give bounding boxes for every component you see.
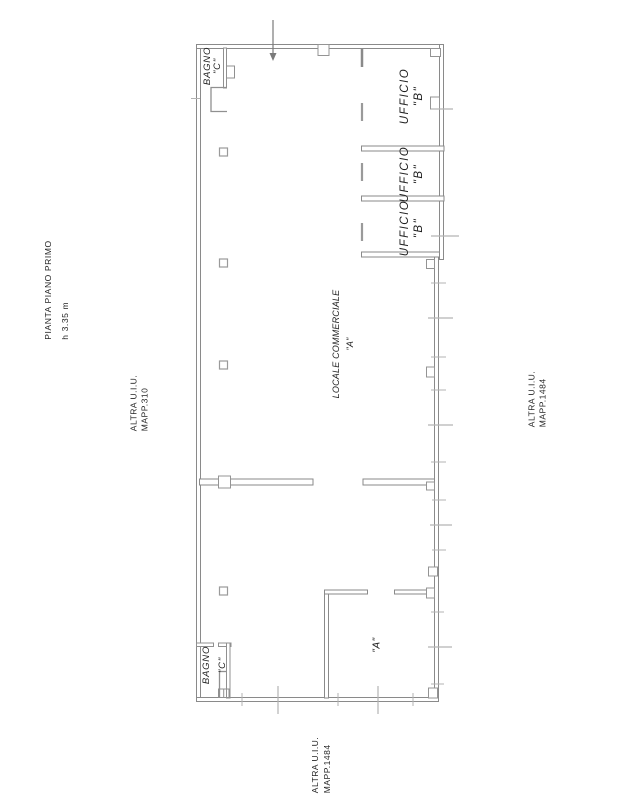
- lower-horizontal-left: [325, 590, 368, 594]
- drawing-height-note: h 3.35 m: [57, 240, 74, 339]
- adjacent-unit-label-bottom: ALTRA U.I.U. MAPP.1484: [309, 737, 333, 793]
- pillar-3: [220, 361, 228, 369]
- bagno-top-id: "C": [213, 47, 223, 85]
- adjacent-unit-label-right: ALTRA U.I.U. MAPP.1484: [527, 371, 548, 427]
- room-label-ufficio-3: UFFICIO "B": [398, 200, 426, 257]
- bagno-bottom-id: "C": [215, 646, 231, 684]
- pillar-4: [220, 587, 228, 595]
- wall-left: [197, 45, 201, 702]
- pilaster-top-corner: [431, 49, 441, 57]
- ufficio-2-id: "B": [412, 146, 426, 203]
- wall-right-lower: [435, 257, 439, 702]
- ufficio-2-name: UFFICIO: [398, 146, 412, 203]
- adjacent-unit-bottom-line1: ALTRA U.I.U.: [309, 737, 321, 793]
- ufficio-1-id: "B": [412, 68, 426, 125]
- pilaster-y588: [427, 588, 435, 598]
- lower-a-id: "A": [372, 637, 383, 652]
- adjacent-unit-bottom-line2: MAPP.1484: [321, 737, 333, 793]
- drawing-title: PIANTA PIANO PRIMO h 3.35 m: [40, 240, 74, 339]
- ufficio-1-name: UFFICIO: [398, 68, 412, 125]
- divider-wall: [200, 476, 435, 488]
- ufficio-3-id: "B": [412, 200, 426, 257]
- pillar-2: [220, 259, 228, 267]
- pilaster-office1: [431, 97, 440, 109]
- bagno-top-wc: [211, 88, 227, 112]
- bagno-top-sink: [227, 66, 235, 78]
- entrance-arrow: [270, 20, 277, 61]
- top-wall-recess: [318, 45, 329, 56]
- divider-pillar: [219, 476, 231, 488]
- locale-commerciale-name: LOCALE COMMERCIALE: [329, 290, 343, 399]
- room-label-bagno-bottom: BAGNO "C": [199, 646, 231, 684]
- room-label-ufficio-2: UFFICIO "B": [398, 146, 426, 203]
- room-label-lower-a: "A": [372, 637, 383, 652]
- pilaster-y260: [427, 260, 435, 269]
- room-label-bagno-top: BAGNO "C": [203, 47, 223, 85]
- pilaster-y367: [427, 367, 435, 377]
- drawing-title-line1: PIANTA PIANO PRIMO: [40, 240, 57, 339]
- pilaster-y567: [429, 567, 438, 576]
- divider-left-segment: [200, 479, 314, 485]
- wall-bottom: [197, 698, 439, 702]
- pillar-1: [220, 148, 228, 156]
- ufficio-3-name: UFFICIO: [398, 200, 412, 257]
- adjacent-unit-right-line2: MAPP.1484: [537, 371, 548, 427]
- adjacent-unit-left-line2: MAPP.310: [139, 375, 150, 431]
- divider-right-segment: [363, 479, 435, 485]
- lower-vertical-wall: [325, 590, 329, 698]
- pilaster-bottom-corner: [429, 688, 438, 698]
- adjacent-unit-label-left: ALTRA U.I.U. MAPP.310: [129, 375, 150, 431]
- entrance-arrow-head: [270, 53, 277, 61]
- pilaster-y482: [427, 482, 435, 490]
- bagno-bottom-name: BAGNO: [199, 646, 215, 684]
- room-label-locale-commerciale: LOCALE COMMERCIALE "A": [329, 290, 357, 399]
- locale-commerciale-id: "A": [343, 290, 357, 399]
- adjacent-unit-right-line1: ALTRA U.I.U.: [527, 371, 538, 427]
- room-label-ufficio-1: UFFICIO "B": [398, 68, 426, 125]
- pillars: [220, 148, 228, 595]
- outer-walls: [197, 45, 444, 702]
- wall-right-upper: [440, 45, 444, 260]
- adjacent-unit-left-line1: ALTRA U.I.U.: [129, 375, 140, 431]
